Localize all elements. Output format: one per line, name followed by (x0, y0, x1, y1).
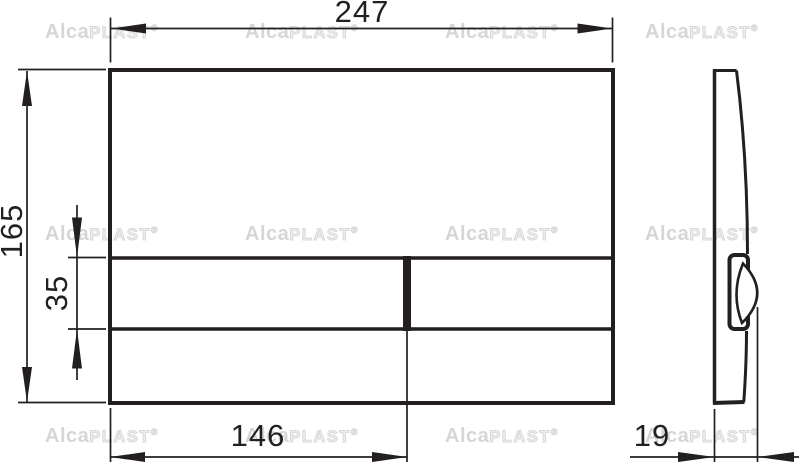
arrow-left (110, 452, 145, 462)
arrow-down (22, 367, 32, 402)
dimension-label-button-width: 146 (231, 418, 286, 454)
front-view (110, 70, 613, 403)
dimension-label-button-height: 35 (39, 275, 75, 311)
drawing-line-art (0, 0, 800, 466)
side-right-edge-lower (744, 331, 747, 402)
dimension-label-thickness: 19 (634, 418, 670, 454)
arrow-up-outside (72, 329, 82, 369)
dimension-label-overall-height: 165 (0, 204, 30, 259)
arrow-left-outside (758, 452, 795, 462)
side-button-lens (736, 264, 757, 324)
arrow-down-outside (72, 218, 82, 258)
dimension-label-overall-width: 247 (335, 0, 390, 30)
technical-drawing-canvas: AlcaPLAST® AlcaPLAST® AlcaPLAST® AlcaPLA… (0, 0, 800, 466)
dimension-arrowheads (22, 24, 794, 463)
plate-outline (110, 70, 613, 403)
arrow-up (22, 71, 32, 106)
arrow-left (111, 24, 146, 34)
arrow-right (372, 452, 407, 462)
side-right-edge-upper (737, 71, 748, 255)
arrow-right-outside (678, 452, 715, 462)
side-bottom-edge (713, 402, 745, 403)
dimension-lines (18, 18, 799, 463)
arrow-right (578, 24, 613, 34)
side-view (713, 70, 757, 404)
